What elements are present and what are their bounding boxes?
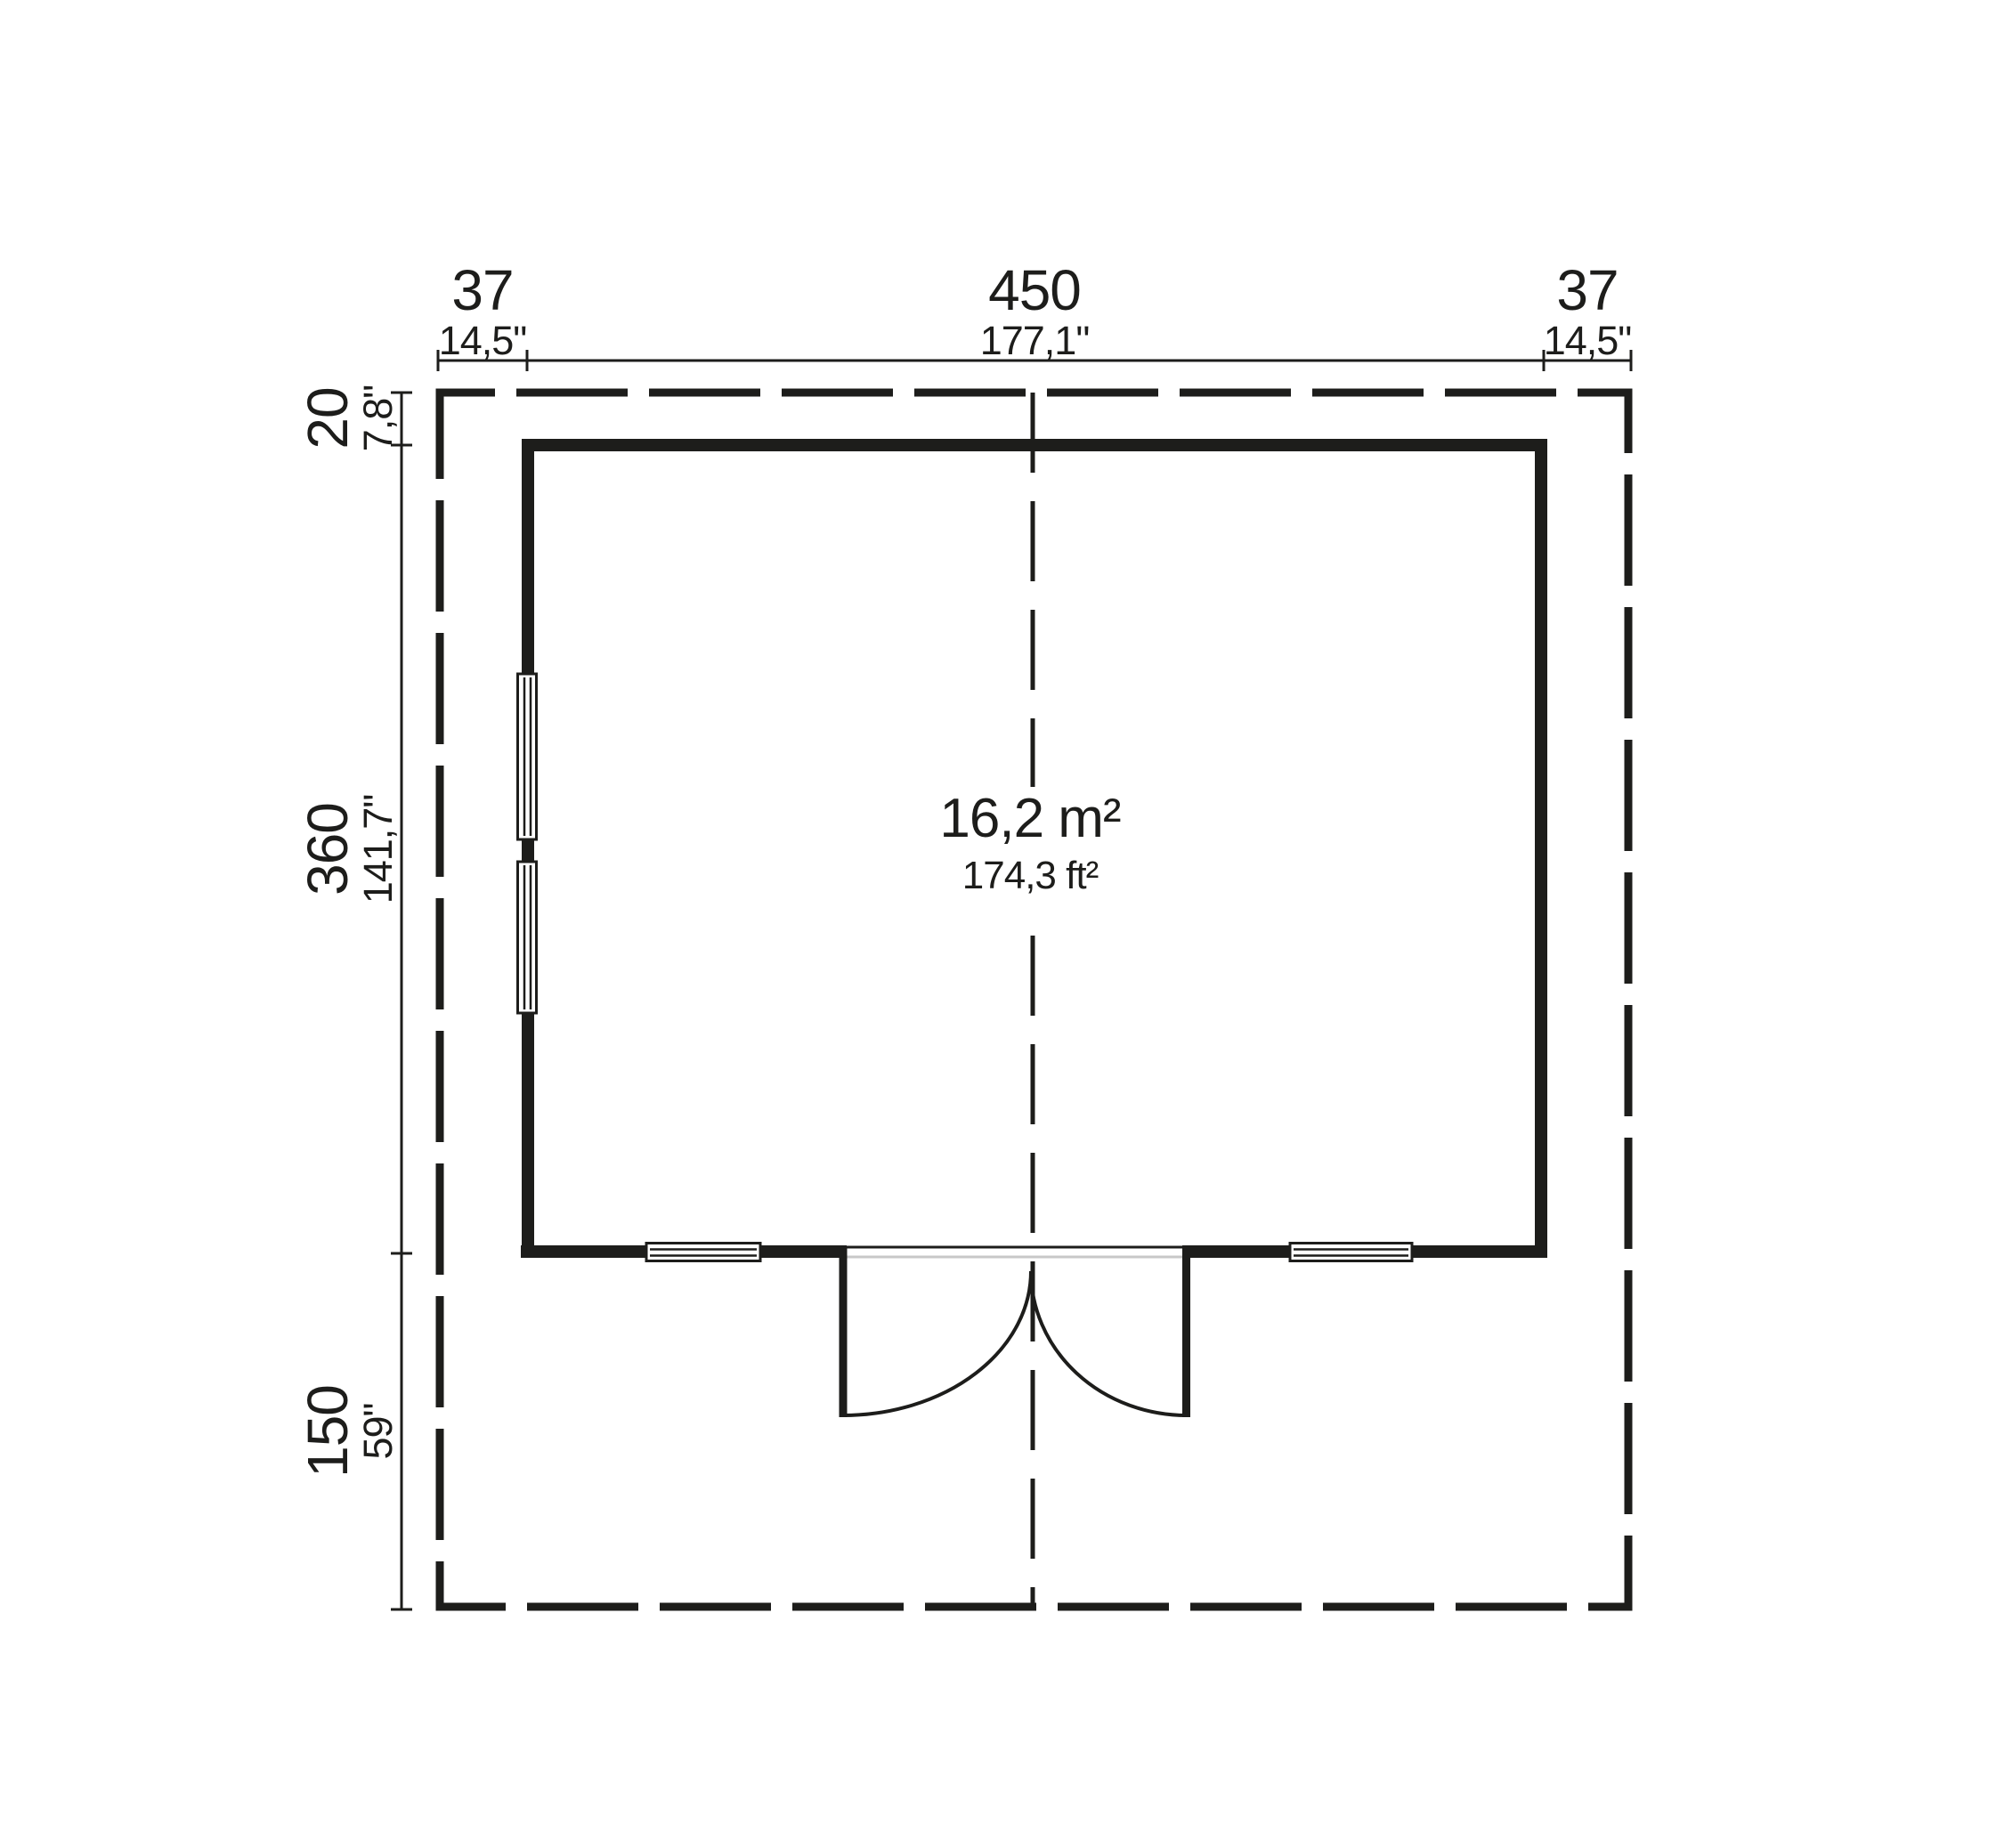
dim-label-depth: 360 141,7" [296,698,402,1001]
double-door [843,1246,1187,1417]
dim-value-inch: 14,5" [1436,318,1739,364]
window-bottom-left [646,1244,760,1261]
floor-plan-canvas: 37 14,5" 450 177,1" 37 14,5" 20 7,8" 360… [0,0,1996,1848]
window-left-upper [518,674,537,839]
dim-value-cm: 360 [300,698,355,1001]
dim-value-cm: 20 [300,267,355,570]
dim-value-inch: 7,8" [355,267,402,570]
dim-label-overhang-top: 20 7,8" [296,267,402,570]
dim-value-cm: 150 [300,1280,355,1583]
door-swing-arc-left [843,1271,1031,1415]
dim-label-width: 450 177,1" [883,259,1186,364]
door-swing-arc-right [1031,1271,1187,1415]
dim-label-terrace-depth: 150 59" [296,1280,402,1583]
floor-area-metric: 16,2 m² [807,787,1253,851]
dim-value-inch: 59" [355,1280,402,1583]
dim-value-cm: 37 [1436,263,1739,318]
window-left-lower [518,862,537,1013]
dim-value-inch: 141,7" [355,698,402,1001]
floor-area-label: 16,2 m² 174,3 ft² [807,787,1253,935]
window-bottom-right [1290,1244,1412,1261]
dim-value-cm: 450 [883,263,1186,318]
dim-value-inch: 177,1" [883,318,1186,364]
dim-label-overhang-right: 37 14,5" [1436,259,1739,364]
windows [518,674,1413,1261]
floor-area-imperial: 174,3 ft² [807,851,1253,901]
